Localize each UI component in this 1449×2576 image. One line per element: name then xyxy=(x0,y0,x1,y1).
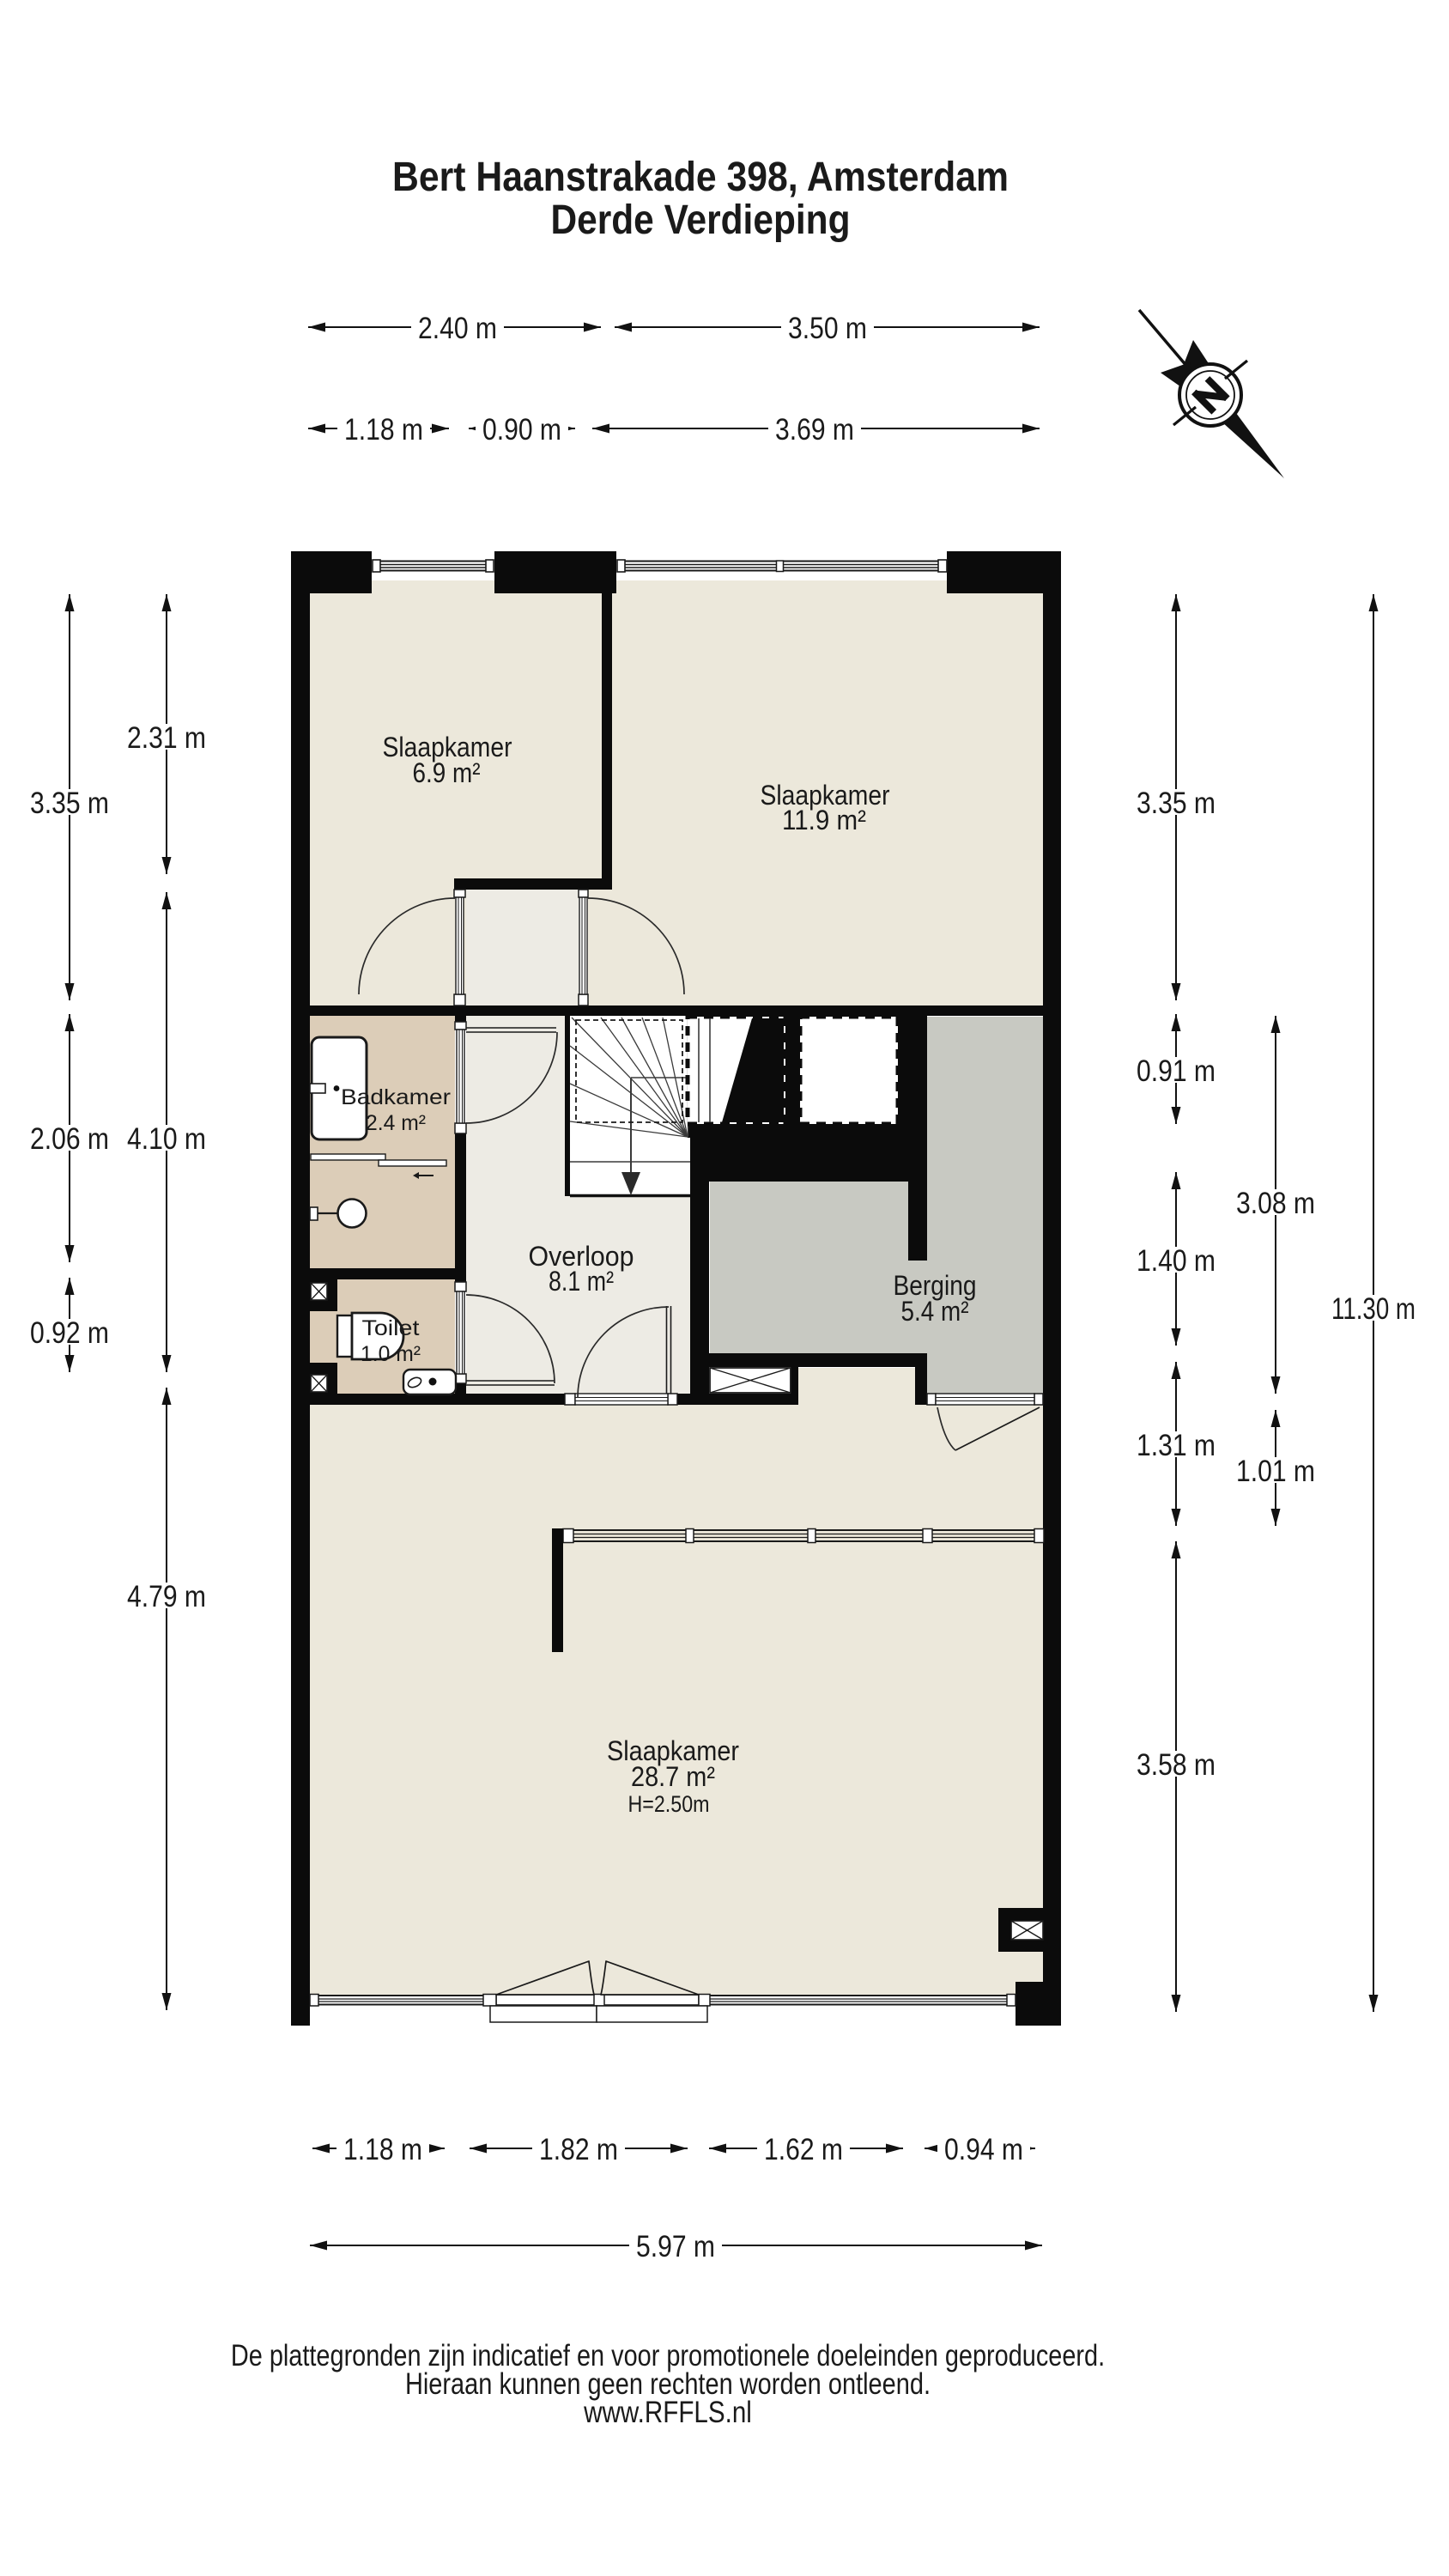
svg-text:0.92 m: 0.92 m xyxy=(30,1316,109,1350)
svg-text:1.62 m: 1.62 m xyxy=(764,2133,843,2166)
svg-text:11.9 m²: 11.9 m² xyxy=(782,805,866,835)
svg-text:4.79 m: 4.79 m xyxy=(127,1580,206,1613)
svg-text:3.69 m: 3.69 m xyxy=(775,413,854,447)
svg-text:Badkamer: Badkamer xyxy=(341,1085,451,1109)
svg-text:28.7 m²: 28.7 m² xyxy=(631,1761,715,1792)
svg-text:1.18 m: 1.18 m xyxy=(344,413,423,447)
svg-text:5.97 m: 5.97 m xyxy=(636,2230,715,2263)
svg-text:Bert Haanstrakade 398, Amsterd: Bert Haanstrakade 398, Amsterdam xyxy=(392,155,1009,200)
svg-text:4.10 m: 4.10 m xyxy=(127,1122,206,1156)
svg-text:H=2.50m: H=2.50m xyxy=(628,1791,710,1817)
svg-text:1.0 m²: 1.0 m² xyxy=(361,1342,421,1366)
svg-text:1.40 m: 1.40 m xyxy=(1137,1244,1216,1278)
svg-text:8.1 m²: 8.1 m² xyxy=(549,1266,614,1297)
svg-text:2.40 m: 2.40 m xyxy=(418,312,497,345)
svg-text:3.50 m: 3.50 m xyxy=(788,312,867,345)
svg-text:6.9 m²: 6.9 m² xyxy=(413,757,481,788)
svg-text:1.31 m: 1.31 m xyxy=(1137,1429,1216,1462)
svg-text:2.4 m²: 2.4 m² xyxy=(366,1111,426,1135)
svg-text:3.35 m: 3.35 m xyxy=(1137,787,1216,820)
svg-text:0.91 m: 0.91 m xyxy=(1137,1054,1216,1088)
svg-text:2.06 m: 2.06 m xyxy=(30,1122,109,1156)
svg-text:www.RFFLS.nl: www.RFFLS.nl xyxy=(583,2396,752,2429)
svg-text:3.35 m: 3.35 m xyxy=(30,787,109,820)
svg-text:11.30 m: 11.30 m xyxy=(1331,1292,1416,1326)
svg-text:3.58 m: 3.58 m xyxy=(1137,1748,1216,1782)
svg-text:3.08 m: 3.08 m xyxy=(1236,1187,1315,1220)
svg-text:Derde Verdieping: Derde Verdieping xyxy=(551,197,851,243)
svg-text:Toilet: Toilet xyxy=(362,1316,420,1340)
svg-text:2.31 m: 2.31 m xyxy=(127,721,206,755)
svg-text:1.18 m: 1.18 m xyxy=(343,2133,422,2166)
svg-text:1.82 m: 1.82 m xyxy=(539,2133,618,2166)
svg-text:1.01 m: 1.01 m xyxy=(1236,1455,1315,1488)
svg-text:5.4 m²: 5.4 m² xyxy=(901,1296,969,1327)
svg-text:0.94 m: 0.94 m xyxy=(944,2133,1023,2166)
svg-text:0.90 m: 0.90 m xyxy=(482,413,561,447)
